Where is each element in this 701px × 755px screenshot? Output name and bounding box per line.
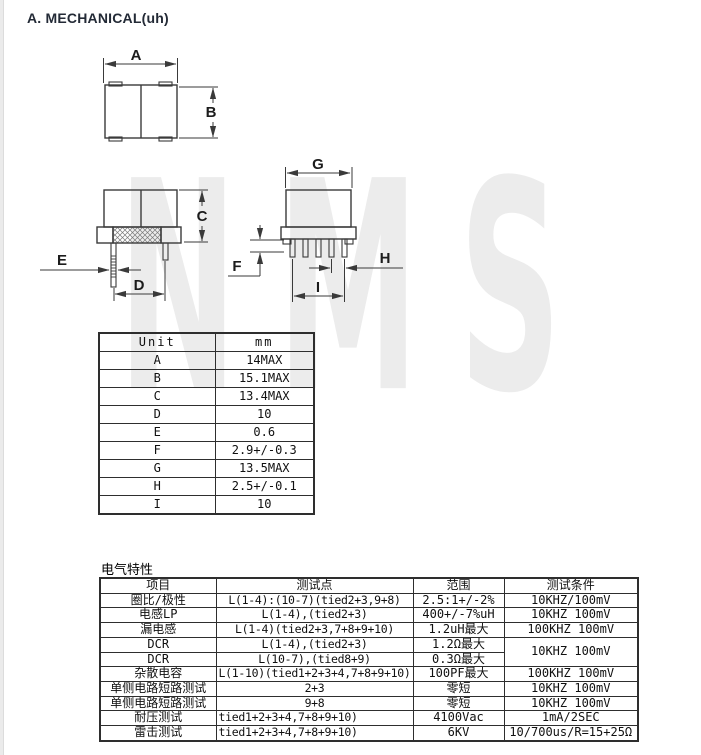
table-header-row: 项目 测试点 范围 测试条件 <box>100 578 638 593</box>
table-row: 圈比/极性L(1-4):(10-7)(tied2+3,9+8)2.5:1+/-2… <box>100 593 638 608</box>
item-cell: DCR <box>100 637 216 652</box>
table-row: 单侧电路短路测试2+3零短10KHZ 100mV <box>100 681 638 696</box>
dim-value: 15.1MAX <box>215 370 314 388</box>
table-row: 单侧电路短路测试9+8零短10KHZ 100mV <box>100 696 638 711</box>
dim-key: D <box>99 406 215 424</box>
dim-label-a: A <box>131 47 142 64</box>
table-row: E0.6 <box>99 424 314 442</box>
table-row: I10 <box>99 496 314 515</box>
condition-cell: 10KHZ 100mV <box>504 637 638 666</box>
electrical-section-title: 电气特性 <box>101 559 153 578</box>
dim-table-header-mm: mm <box>215 333 314 352</box>
range-cell: 2.5:1+/-2% <box>413 593 504 608</box>
range-cell: 4100Vac <box>413 711 504 726</box>
dim-key: E <box>99 424 215 442</box>
electrical-table-body: 圈比/极性L(1-4):(10-7)(tied2+3,9+8)2.5:1+/-2… <box>100 593 638 741</box>
table-row: G13.5MAX <box>99 460 314 478</box>
test-point-cell: L(10-7),(tied8+9) <box>216 652 413 667</box>
item-cell: 单侧电路短路测试 <box>100 696 216 711</box>
dim-value: 0.6 <box>215 424 314 442</box>
condition-cell: 1mA/2SEC <box>504 711 638 726</box>
item-cell: 电感LP <box>100 608 216 623</box>
range-cell: 0.3Ω最大 <box>413 652 504 667</box>
table-row: 雷击测试tied1+2+3+4,7+8+9+10)6KV10/700us/R=1… <box>100 726 638 741</box>
condition-cell: 10KHZ 100mV <box>504 608 638 623</box>
table-row: C13.4MAX <box>99 388 314 406</box>
item-cell: 单侧电路短路测试 <box>100 681 216 696</box>
item-cell: 杂散电容 <box>100 667 216 682</box>
range-cell: 零短 <box>413 696 504 711</box>
test-point-cell: L(1-4):(10-7)(tied2+3,9+8) <box>216 593 413 608</box>
electrical-header-range: 范围 <box>413 578 504 593</box>
dim-table-body: A14MAXB15.1MAXC13.4MAXD10E0.6F2.9+/-0.3G… <box>99 352 314 515</box>
condition-cell: 10KHZ 100mV <box>504 681 638 696</box>
test-point-cell: tied1+2+3+4,7+8+9+10) <box>216 711 413 726</box>
dim-key: C <box>99 388 215 406</box>
table-row: F2.9+/-0.3 <box>99 442 314 460</box>
condition-cell: 100KHZ 100mV <box>504 623 638 638</box>
test-point-cell: L(1-4)(tied2+3,7+8+9+10) <box>216 623 413 638</box>
dim-key: A <box>99 352 215 370</box>
test-point-cell: L(1-4),(tied2+3) <box>216 637 413 652</box>
range-cell: 1.2uH最大 <box>413 623 504 638</box>
dim-value: 2.9+/-0.3 <box>215 442 314 460</box>
dim-key: H <box>99 478 215 496</box>
condition-cell: 100KHZ 100mV <box>504 667 638 682</box>
dim-table-header-unit: Unit <box>99 333 215 352</box>
test-point-cell: tied1+2+3+4,7+8+9+10) <box>216 726 413 741</box>
range-cell: 400+/-7%uH <box>413 608 504 623</box>
page-title: A. MECHANICAL(uh) <box>27 10 169 26</box>
dim-value: 2.5+/-0.1 <box>215 478 314 496</box>
electrical-header-testpoint: 测试点 <box>216 578 413 593</box>
table-row: D10 <box>99 406 314 424</box>
range-cell: 1.2Ω最大 <box>413 637 504 652</box>
condition-cell: 10KHZ 100mV <box>504 696 638 711</box>
electrical-header-item: 项目 <box>100 578 216 593</box>
page-edge <box>0 0 4 755</box>
dim-label-b: B <box>206 104 217 121</box>
table-row: DCRL(1-4),(tied2+3)1.2Ω最大10KHZ 100mV <box>100 637 638 652</box>
table-row: H2.5+/-0.1 <box>99 478 314 496</box>
electrical-table: 项目 测试点 范围 测试条件 圈比/极性L(1-4):(10-7)(tied2+… <box>99 577 639 742</box>
electrical-header-condition: 测试条件 <box>504 578 638 593</box>
range-cell: 100PF最大 <box>413 667 504 682</box>
dim-key: G <box>99 460 215 478</box>
dim-label-e: E <box>57 252 67 269</box>
datasheet-page: { "window": { "title": "A. MECHANICAL(uh… <box>0 0 701 755</box>
dim-key: F <box>99 442 215 460</box>
condition-cell: 10/700us/R=15+25Ω <box>504 726 638 741</box>
dim-key: I <box>99 496 215 515</box>
table-row: 杂散电容L(1-10)(tied1+2+3+4,7+8+9+10)100PF最大… <box>100 667 638 682</box>
item-cell: 圈比/极性 <box>100 593 216 608</box>
item-cell: 漏电感 <box>100 623 216 638</box>
test-point-cell: 2+3 <box>216 681 413 696</box>
range-cell: 零短 <box>413 681 504 696</box>
table-row: 漏电感L(1-4)(tied2+3,7+8+9+10)1.2uH最大100KHZ… <box>100 623 638 638</box>
item-cell: 雷击测试 <box>100 726 216 741</box>
table-row: 耐压测试tied1+2+3+4,7+8+9+10)4100Vac1mA/2SEC <box>100 711 638 726</box>
dimension-table: Unit mm A14MAXB15.1MAXC13.4MAXD10E0.6F2.… <box>98 332 315 515</box>
table-row: 电感LPL(1-4),(tied2+3)400+/-7%uH10KHZ 100m… <box>100 608 638 623</box>
condition-cell: 10KHZ/100mV <box>504 593 638 608</box>
dim-value: 10 <box>215 406 314 424</box>
dim-value: 14MAX <box>215 352 314 370</box>
dim-value: 13.4MAX <box>215 388 314 406</box>
range-cell: 6KV <box>413 726 504 741</box>
table-header-row: Unit mm <box>99 333 314 352</box>
table-row: A14MAX <box>99 352 314 370</box>
table-row: B15.1MAX <box>99 370 314 388</box>
dim-key: B <box>99 370 215 388</box>
test-point-cell: L(1-4),(tied2+3) <box>216 608 413 623</box>
dim-value: 10 <box>215 496 314 515</box>
dim-value: 13.5MAX <box>215 460 314 478</box>
test-point-cell: 9+8 <box>216 696 413 711</box>
test-point-cell: L(1-10)(tied1+2+3+4,7+8+9+10) <box>216 667 413 682</box>
item-cell: 耐压测试 <box>100 711 216 726</box>
item-cell: DCR <box>100 652 216 667</box>
